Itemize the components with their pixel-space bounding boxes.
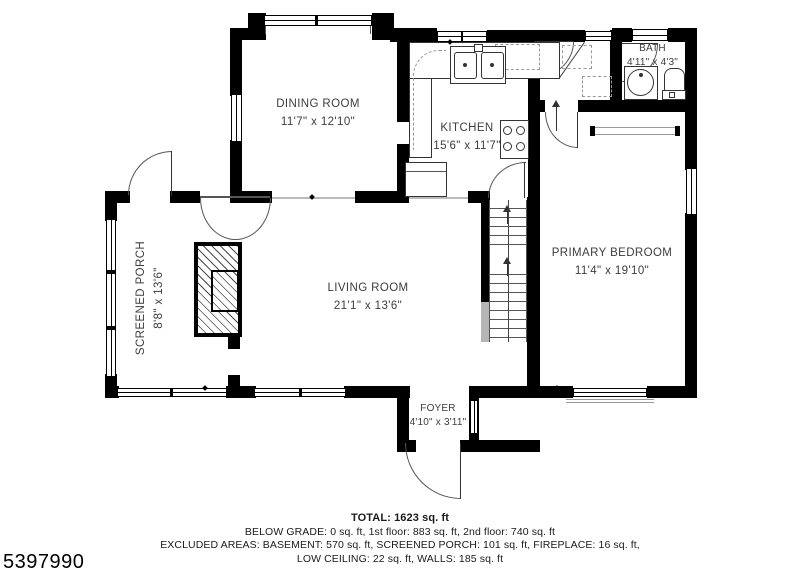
stair-direction-arrow (503, 205, 511, 212)
wall (685, 213, 697, 398)
room-name: SCREENED PORCH (132, 238, 150, 358)
room-dims: 21'1" x 13'6" (298, 297, 438, 315)
summary-total: TOTAL: 1623 sq. ft (0, 512, 800, 526)
stair-arrow-stem (507, 264, 508, 276)
room-label-foyer: FOYER 4'10" x 3'11" (398, 402, 478, 430)
room-label-primary-bedroom: PRIMARY BEDROOM 11'4" x 19'10" (532, 244, 692, 280)
toilet-flush (669, 92, 675, 98)
room-dims: 11'7" x 12'10" (248, 113, 388, 131)
stair-wall (481, 200, 489, 302)
floor-plan: DINING ROOM 11'7" x 12'10" KITCHEN 15'6"… (0, 0, 800, 580)
room-name: KITCHEN (407, 119, 527, 137)
room-dims: 8'8" x 13'6" (150, 238, 168, 358)
window (686, 168, 697, 215)
bay-return-line (370, 26, 371, 34)
window-mullion (106, 270, 116, 274)
stair-rail (481, 302, 489, 342)
area-summary: TOTAL: 1623 sq. ft BELOW GRADE: 0 sq. ft… (0, 512, 800, 566)
floor-plan-page: DINING ROOM 11'7" x 12'10" KITCHEN 15'6"… (0, 0, 800, 580)
wall (527, 197, 540, 398)
door-leaf (577, 112, 578, 148)
window (632, 29, 668, 41)
front-door-arc (405, 443, 461, 499)
window-mullion (315, 15, 318, 26)
room-label-kitchen: KITCHEN 15'6" x 11'7" (407, 119, 527, 155)
room-label-living: LIVING ROOM 21'1" x 13'6" (298, 279, 438, 315)
wall (527, 386, 573, 398)
summary-line: LOW CEILING: 22 sq. ft, WALLS: 185 sq. f… (0, 553, 800, 567)
staircase-lower-run (489, 266, 527, 342)
low-ceiling-cap (675, 126, 680, 136)
room-label-screened-porch: SCREENED PORCH 8'8" x 13'6" (132, 238, 172, 358)
toilet-bowl (664, 68, 685, 92)
low-ceiling-line (593, 127, 677, 135)
room-dims: 15'6" x 11'7" (407, 137, 527, 155)
window (264, 15, 372, 26)
door-leaf (171, 151, 172, 196)
hall-closet-dashed (582, 76, 612, 97)
room-name: PRIMARY BEDROOM (532, 244, 692, 262)
window (585, 31, 612, 41)
porch-exterior-door-arc (128, 151, 172, 195)
porch-living-french-door-arc (200, 198, 271, 240)
sink-drain (463, 63, 467, 67)
wall (228, 375, 240, 388)
stair-top-door-arc (488, 162, 526, 198)
wall (578, 100, 697, 112)
porch-window (106, 219, 116, 377)
window-mullion (106, 326, 116, 330)
hall-stair-arrow (552, 100, 560, 107)
wall (355, 191, 409, 203)
window (573, 388, 647, 397)
room-name: DINING ROOM (248, 95, 388, 113)
door-leaf (460, 443, 461, 499)
wall (528, 100, 545, 112)
open-archway-line (409, 197, 468, 199)
window-mullion (299, 388, 302, 397)
wall (397, 30, 409, 122)
faucet (474, 44, 483, 52)
window-sill (566, 399, 654, 403)
room-dims: 4'10" x 3'11" (398, 416, 478, 430)
room-dims: 11'4" x 19'10" (532, 262, 692, 280)
wall (528, 78, 540, 197)
sink-drain (639, 73, 643, 77)
room-label-dining: DINING ROOM 11'7" x 12'10" (248, 95, 388, 131)
window (231, 94, 242, 142)
bay-return-line (265, 26, 266, 34)
refrigerator (405, 162, 447, 197)
listing-id: 5397990 (3, 551, 84, 574)
room-name: BATH (610, 42, 695, 56)
room-dims: 4'11" x 4'3" (610, 56, 695, 70)
upper-cabinet-dashed-line (562, 45, 592, 69)
door-leaf (524, 162, 525, 198)
hall-stair-arrow-stem (556, 107, 557, 131)
window-mullion (170, 388, 173, 397)
wall (170, 191, 200, 203)
stair-direction-arrow (503, 257, 511, 264)
low-ceiling-cap (590, 126, 595, 136)
room-name: LIVING ROOM (298, 279, 438, 297)
room-label-bath: BATH 4'11" x 4'3" (610, 42, 695, 70)
wall (105, 191, 117, 221)
stair-arrow-stem (507, 212, 508, 224)
window-mullion (461, 31, 463, 42)
sink-drain (490, 63, 494, 67)
refrigerator-door-line (406, 171, 446, 172)
wall (647, 386, 697, 398)
room-name: FOYER (398, 402, 478, 416)
wall (230, 28, 242, 96)
summary-line: EXCLUDED AREAS: BASEMENT: 570 sq. ft, SC… (0, 539, 800, 553)
summary-line: BELOW GRADE: 0 sq. ft, 1st floor: 883 sq… (0, 526, 800, 540)
bedroom-door-arc (545, 112, 578, 148)
fireplace-firebox (211, 270, 239, 312)
